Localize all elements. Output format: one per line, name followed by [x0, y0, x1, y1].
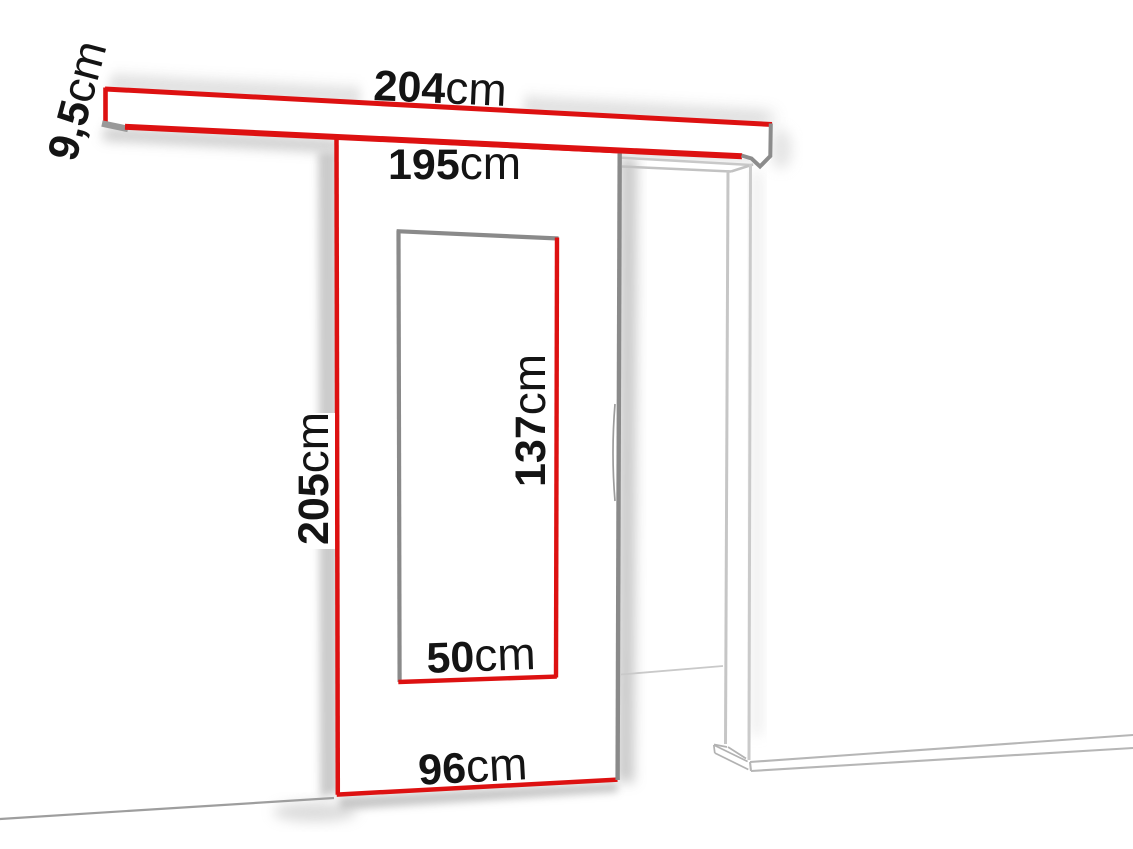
svg-text:96cm: 96cm — [417, 737, 529, 795]
svg-text:205cm: 205cm — [286, 412, 338, 545]
svg-text:195cm: 195cm — [388, 137, 521, 189]
svg-text:137cm: 137cm — [503, 354, 555, 487]
svg-text:50cm: 50cm — [426, 627, 537, 683]
